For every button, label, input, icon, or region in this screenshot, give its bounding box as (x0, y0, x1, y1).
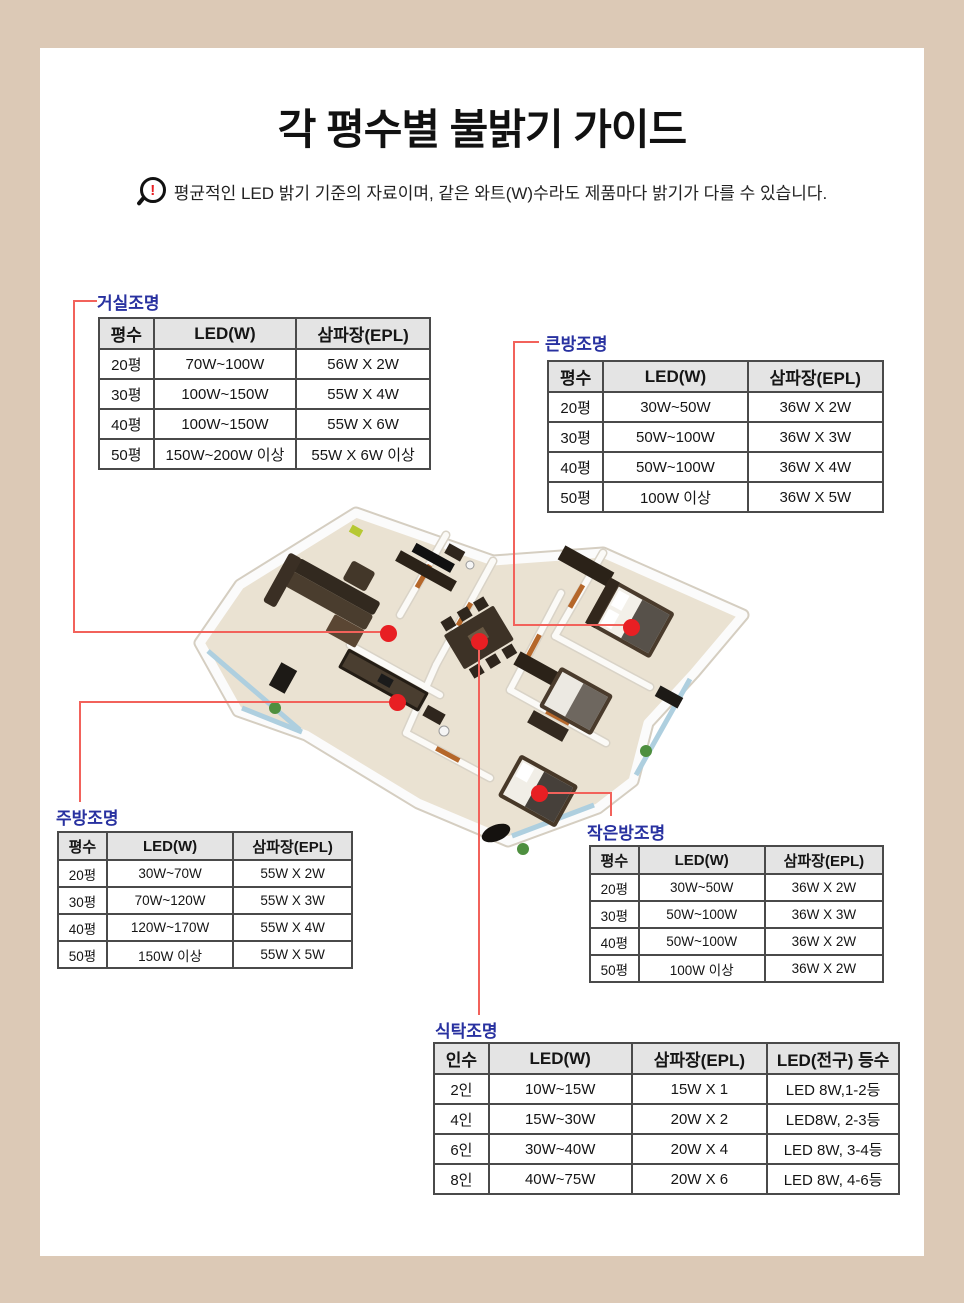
connector-dining-vertical (478, 641, 480, 1015)
column-header: 인수 (434, 1043, 489, 1074)
table-cell: 10W~15W (489, 1074, 632, 1104)
table-cell: 8인 (434, 1164, 489, 1194)
bigroom-table: 평수LED(W)삼파장(EPL)20평30W~50W36W X 2W30평50W… (547, 360, 884, 513)
connector-smallroom-horizontal (539, 792, 612, 794)
table-cell: 50평 (99, 439, 154, 469)
table-cell: 40평 (99, 409, 154, 439)
table-cell: 55W X 5W (233, 941, 352, 968)
marker-dining-table (471, 633, 488, 650)
connector-smallroom-vertical (610, 792, 612, 816)
page-title: 각 평수별 불밝기 가이드 (0, 96, 964, 157)
table-row: 40평100W~150W55W X 6W (99, 409, 430, 439)
table-cell: 6인 (434, 1134, 489, 1164)
column-header: LED(W) (154, 318, 297, 349)
column-header: 삼파장(EPL) (296, 318, 430, 349)
marker-kitchen (389, 694, 406, 711)
table-cell: 56W X 2W (296, 349, 430, 379)
table-cell: 30W~40W (489, 1134, 632, 1164)
table-row: 40평120W~170W55W X 4W (58, 914, 352, 941)
column-header: LED(W) (603, 361, 747, 392)
table-cell: 30평 (58, 887, 107, 914)
table-cell: 2인 (434, 1074, 489, 1104)
column-header: 삼파장(EPL) (748, 361, 883, 392)
table-cell: 30W~50W (603, 392, 747, 422)
table-label-kitchen: 주방조명 (56, 804, 119, 829)
table-row: 2인10W~15W15W X 1LED 8W,1-2등 (434, 1074, 899, 1104)
table-cell: 100W~150W (154, 379, 297, 409)
table-cell: 55W X 6W (296, 409, 430, 439)
table-label-living: 거실조명 (97, 289, 160, 314)
table-row: 50평150W~200W 이상55W X 6W 이상 (99, 439, 430, 469)
table-row: 8인40W~75W20W X 6LED 8W, 4-6등 (434, 1164, 899, 1194)
table-cell: 150W~200W 이상 (154, 439, 297, 469)
connector-kitchen-vertical (79, 701, 81, 802)
table-cell: 20평 (99, 349, 154, 379)
table-cell: 36W X 2W (748, 392, 883, 422)
column-header: 평수 (58, 832, 107, 860)
table-cell: 4인 (434, 1104, 489, 1134)
table-row: 50평100W 이상36W X 2W (590, 955, 883, 982)
table-cell: 50W~100W (603, 452, 747, 482)
infographic-canvas: 각 평수별 불밝기 가이드 ! 평균적인 LED 밝기 기준의 자료이며, 같은… (0, 0, 964, 1303)
column-header: 평수 (548, 361, 603, 392)
magnifier-handle (136, 196, 145, 206)
table-cell: 36W X 2W (765, 874, 883, 901)
table-cell: 36W X 3W (765, 901, 883, 928)
column-header: 평수 (99, 318, 154, 349)
table-cell: 55W X 4W (296, 379, 430, 409)
table-cell: 30평 (99, 379, 154, 409)
living-table: 평수LED(W)삼파장(EPL)20평70W~100W56W X 2W30평10… (98, 317, 431, 470)
table-cell: 100W 이상 (639, 955, 765, 982)
table-row: 20평30W~50W36W X 2W (548, 392, 883, 422)
column-header: LED(전구) 등수 (767, 1043, 899, 1074)
table-cell: 36W X 4W (748, 452, 883, 482)
table-cell: 20평 (548, 392, 603, 422)
table-cell: 40평 (58, 914, 107, 941)
table-row: 50평150W 이상55W X 5W (58, 941, 352, 968)
table-row: 6인30W~40W20W X 4LED 8W, 3-4등 (434, 1134, 899, 1164)
dining-table: 인수LED(W)삼파장(EPL)LED(전구) 등수2인10W~15W15W X… (433, 1042, 900, 1195)
connector-living-horizontal (73, 631, 389, 633)
table-header-row: 인수LED(W)삼파장(EPL)LED(전구) 등수 (434, 1043, 899, 1074)
table-cell: LED 8W, 3-4등 (767, 1134, 899, 1164)
table-cell: 55W X 6W 이상 (296, 439, 430, 469)
table-header-row: 평수LED(W)삼파장(EPL) (548, 361, 883, 392)
connector-bigroom-tick (513, 341, 539, 343)
table-row: 20평70W~100W56W X 2W (99, 349, 430, 379)
table-header-row: 평수LED(W)삼파장(EPL) (99, 318, 430, 349)
exclamation-glyph: ! (150, 183, 155, 198)
table-row: 40평50W~100W36W X 2W (590, 928, 883, 955)
connector-living-vertical (73, 300, 75, 633)
table-cell: 20W X 2 (632, 1104, 768, 1134)
table-cell: 36W X 2W (765, 928, 883, 955)
table-row: 4인15W~30W20W X 2LED8W, 2-3등 (434, 1104, 899, 1134)
table-cell: 150W 이상 (107, 941, 233, 968)
table-cell: 55W X 4W (233, 914, 352, 941)
table-label-bigroom: 큰방조명 (545, 330, 608, 355)
table-row: 40평50W~100W36W X 4W (548, 452, 883, 482)
table-row: 30평100W~150W55W X 4W (99, 379, 430, 409)
connector-bigroom-horizontal (513, 624, 632, 626)
table-row: 30평50W~100W36W X 3W (548, 422, 883, 452)
table-cell: 20평 (58, 860, 107, 887)
table-cell: 36W X 2W (765, 955, 883, 982)
table-cell: 15W~30W (489, 1104, 632, 1134)
table-cell: 40평 (548, 452, 603, 482)
table-cell: LED8W, 2-3등 (767, 1104, 899, 1134)
table-cell: 15W X 1 (632, 1074, 768, 1104)
table-cell: 30평 (548, 422, 603, 452)
table-cell: LED 8W, 4-6등 (767, 1164, 899, 1194)
table-label-dining: 식탁조명 (435, 1017, 498, 1042)
notice-row: ! 평균적인 LED 밝기 기준의 자료이며, 같은 와트(W)수라도 제품마다… (0, 176, 964, 206)
table-cell: 36W X 3W (748, 422, 883, 452)
column-header: LED(W) (489, 1043, 632, 1074)
connector-bigroom-vertical (513, 341, 515, 626)
marker-living-room (380, 625, 397, 642)
marker-master-bedroom (623, 619, 640, 636)
connector-kitchen-horizontal (79, 701, 398, 703)
notice-text: 평균적인 LED 밝기 기준의 자료이며, 같은 와트(W)수라도 제품마다 밝… (174, 179, 828, 204)
table-cell: LED 8W,1-2등 (767, 1074, 899, 1104)
table-cell: 50W~100W (603, 422, 747, 452)
table-cell: 40평 (590, 928, 639, 955)
marker-small-bedroom (531, 785, 548, 802)
column-header: 삼파장(EPL) (765, 846, 883, 874)
table-cell: 120W~170W (107, 914, 233, 941)
table-cell: 100W~150W (154, 409, 297, 439)
table-cell: 50W~100W (639, 928, 765, 955)
table-cell: 20W X 6 (632, 1164, 768, 1194)
column-header: 삼파장(EPL) (632, 1043, 768, 1074)
table-cell: 50평 (58, 941, 107, 968)
table-cell: 70W~100W (154, 349, 297, 379)
connector-living-tick (73, 300, 97, 302)
table-cell: 20W X 4 (632, 1134, 768, 1164)
table-cell: 50평 (590, 955, 639, 982)
table-cell: 40W~75W (489, 1164, 632, 1194)
magnifier-alert-icon: ! (137, 176, 165, 206)
